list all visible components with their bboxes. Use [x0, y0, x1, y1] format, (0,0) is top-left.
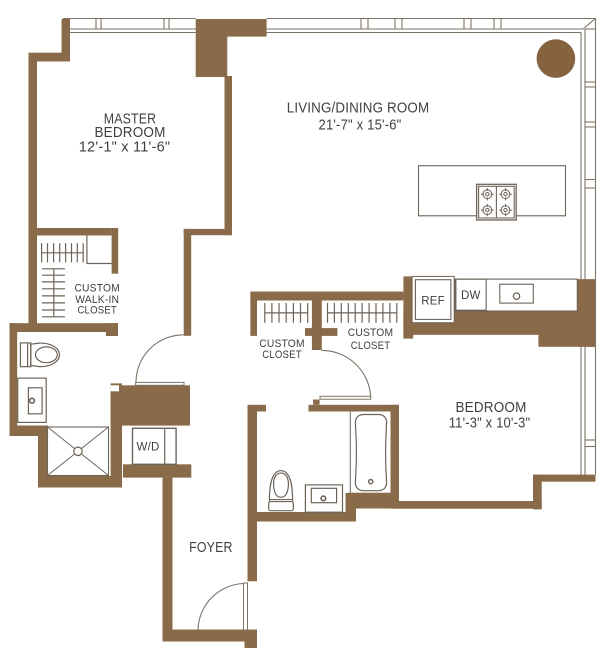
svg-text:BEDROOM: BEDROOM	[456, 399, 527, 416]
svg-text:12'-1" x 11'-6": 12'-1" x 11'-6"	[79, 140, 171, 156]
svg-text:21'-7" x 15'-6": 21'-7" x 15'-6"	[319, 117, 402, 133]
svg-text:REF: REF	[421, 296, 445, 308]
svg-text:CUSTOM: CUSTOM	[74, 282, 120, 294]
svg-text:DW: DW	[461, 290, 481, 302]
svg-text:CUSTOM: CUSTOM	[259, 338, 305, 350]
svg-text:CLOSET: CLOSET	[262, 349, 302, 361]
svg-text:W/D: W/D	[137, 442, 160, 454]
svg-text:CLOSET: CLOSET	[77, 305, 117, 317]
svg-text:LIVING/DINING ROOM: LIVING/DINING ROOM	[287, 100, 430, 117]
svg-text:CLOSET: CLOSET	[351, 340, 391, 352]
svg-text:CUSTOM: CUSTOM	[348, 327, 394, 339]
svg-text:11'-3" x 10'-3": 11'-3" x 10'-3"	[449, 415, 531, 431]
svg-text:FOYER: FOYER	[189, 539, 233, 556]
